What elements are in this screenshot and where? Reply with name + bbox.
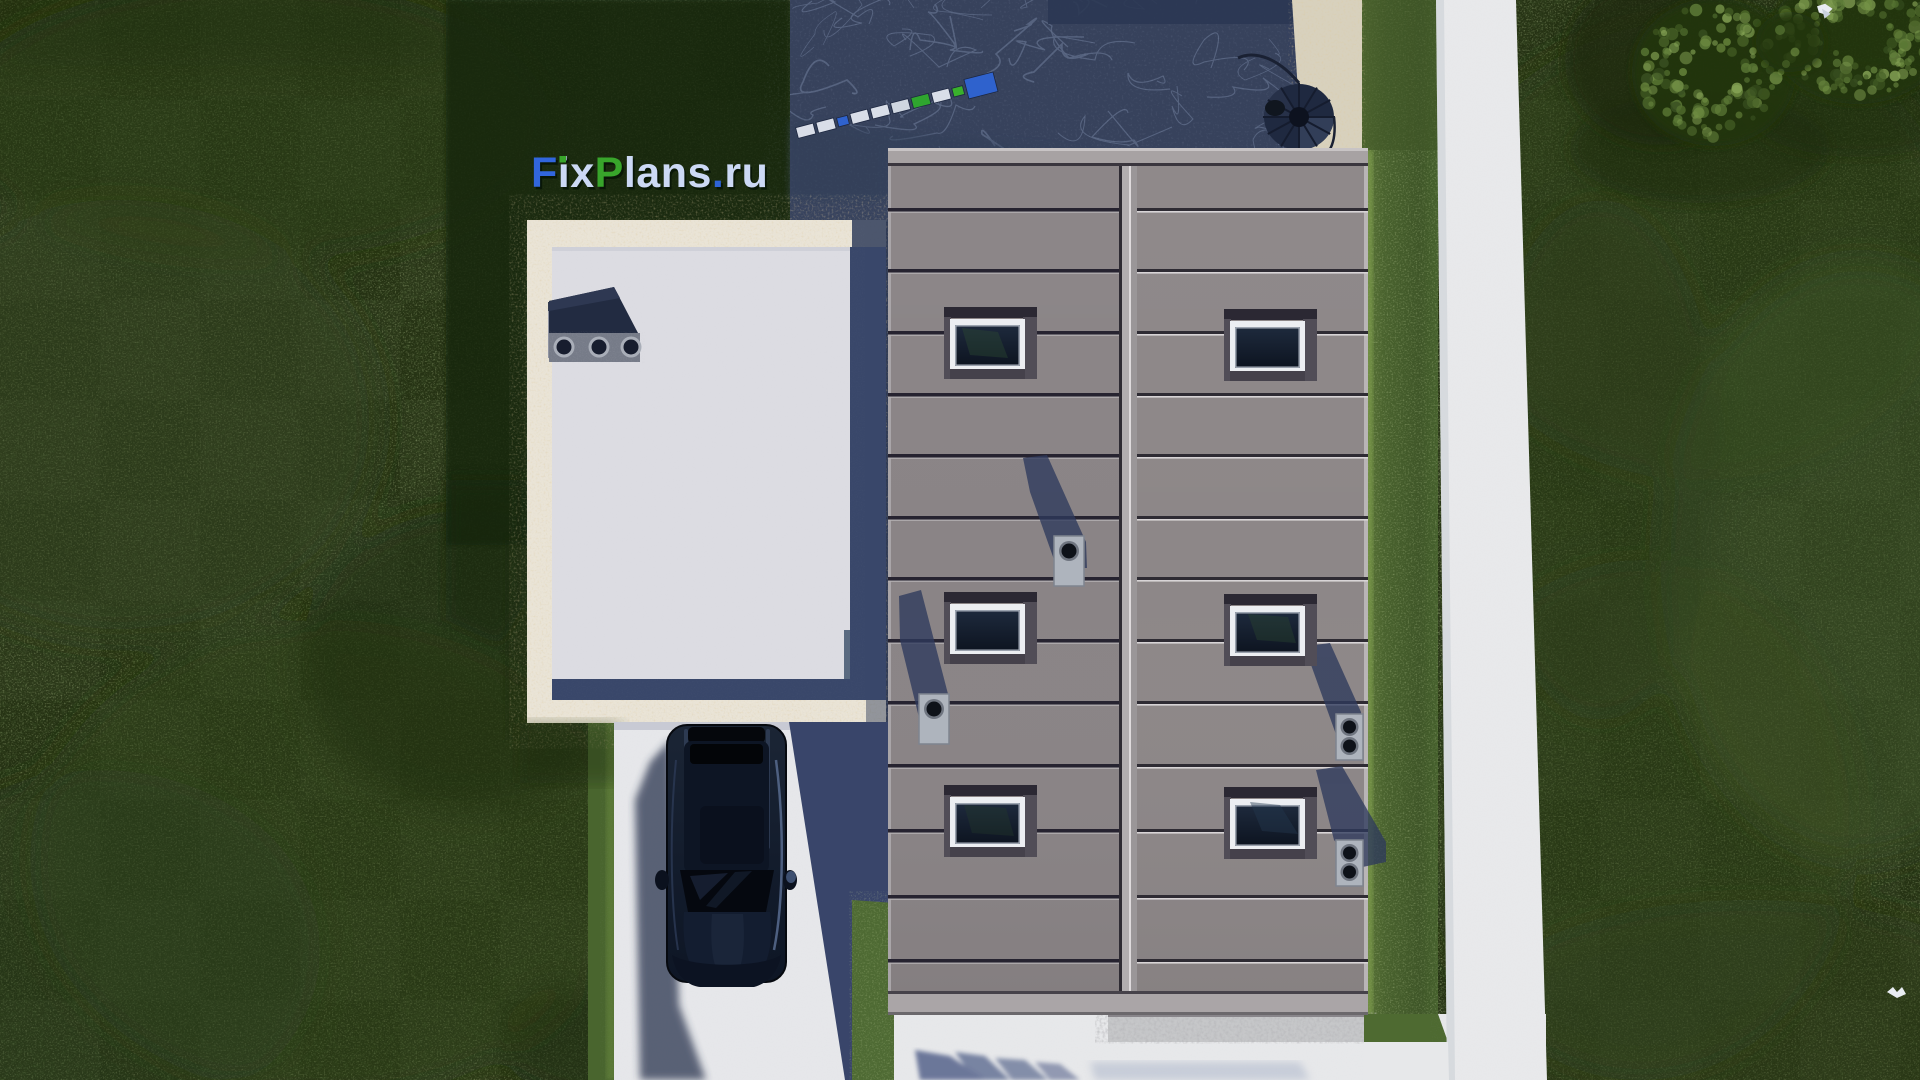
svg-text:FixPlans.ru: FixPlans.ru [531,149,768,197]
